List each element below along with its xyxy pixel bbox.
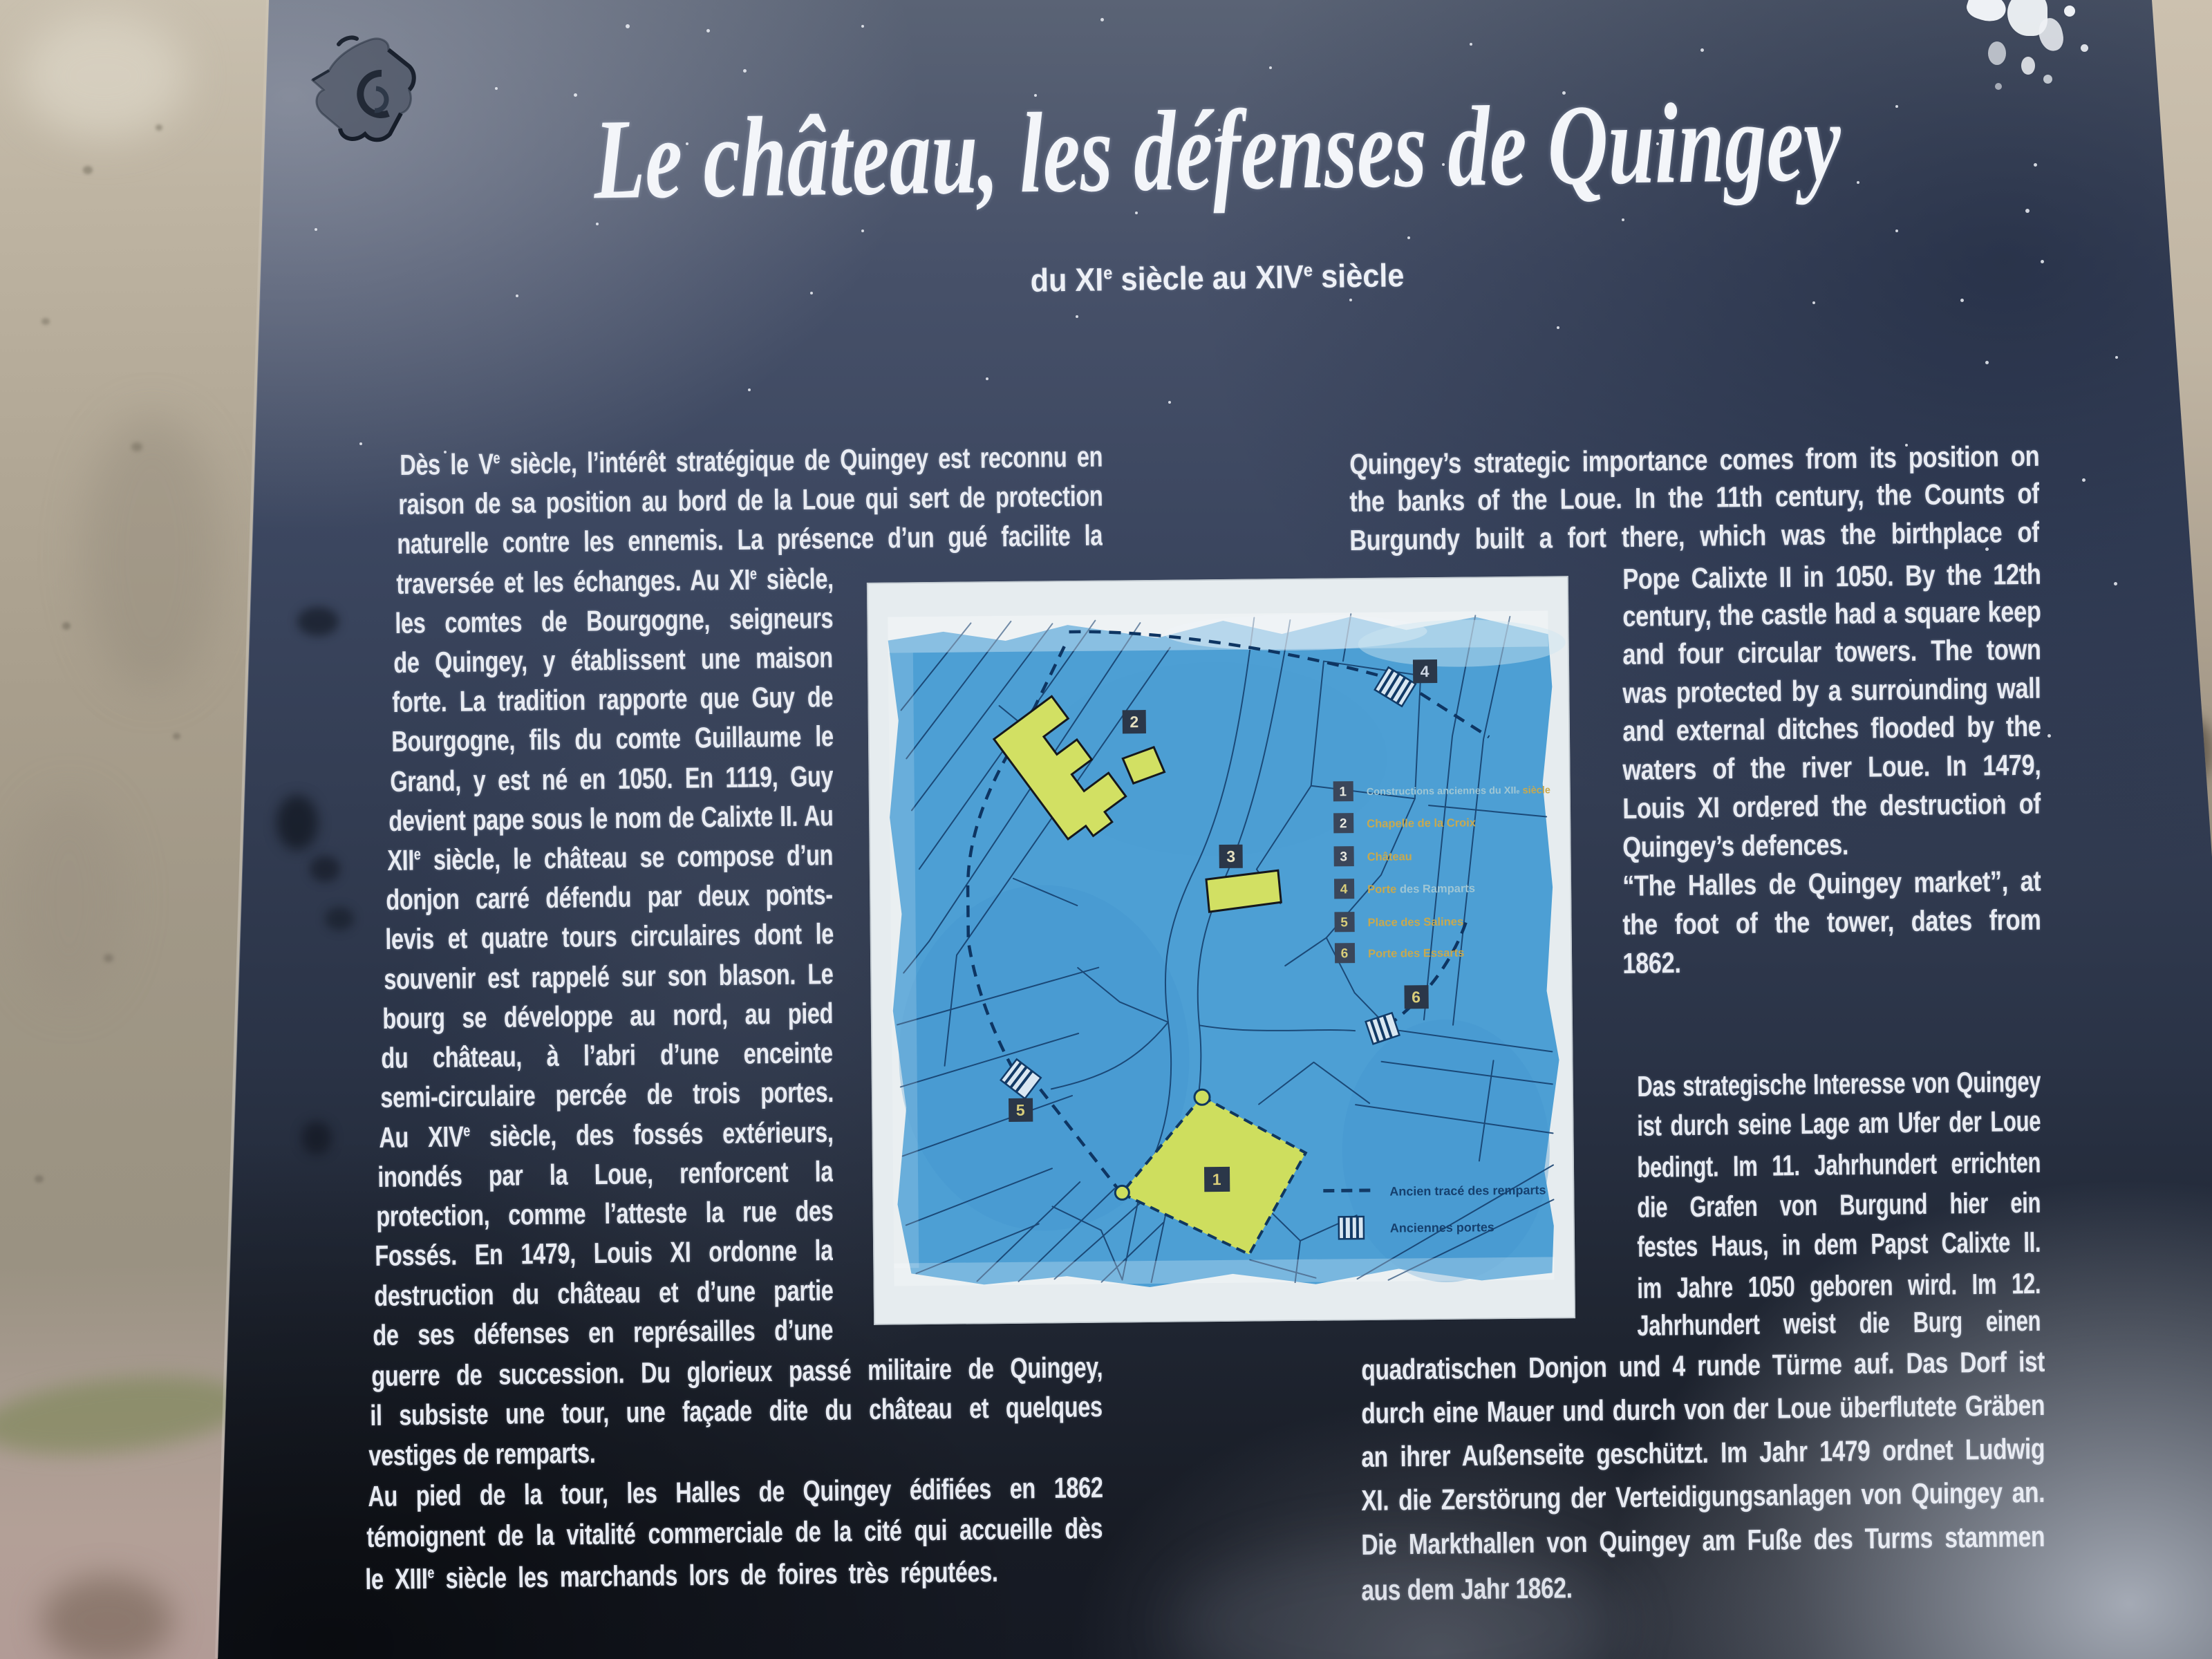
svg-text:1: 1 xyxy=(1339,785,1347,799)
svg-text:5: 5 xyxy=(1340,915,1348,930)
svg-text:2: 2 xyxy=(1340,816,1347,831)
svg-text:5: 5 xyxy=(1016,1101,1025,1119)
svg-text:Anciennes portes: Anciennes portes xyxy=(1390,1220,1494,1235)
svg-text:Château: Château xyxy=(1367,850,1412,863)
svg-text:Chapelle de la Croix: Chapelle de la Croix xyxy=(1367,816,1477,830)
svg-text:3: 3 xyxy=(1340,850,1347,864)
svg-text:6: 6 xyxy=(1412,988,1421,1006)
svg-text:4: 4 xyxy=(1421,662,1430,680)
svg-text:Ancien tracé des remparts: Ancien tracé des remparts xyxy=(1389,1183,1546,1199)
svg-text:1: 1 xyxy=(1212,1170,1221,1188)
svg-text:6: 6 xyxy=(1341,946,1349,961)
svg-text:Porte des Essarts: Porte des Essarts xyxy=(1368,947,1465,960)
svg-text:2: 2 xyxy=(1130,713,1138,731)
svg-text:Porte des Ramparts: Porte des Ramparts xyxy=(1367,882,1475,895)
svg-text:Place des Salines: Place des Salines xyxy=(1368,916,1464,929)
svg-text:Constructions anciennes du XII: Constructions anciennes du XIIe siècle xyxy=(1367,785,1550,798)
svg-text:3: 3 xyxy=(1226,847,1235,865)
svg-text:4: 4 xyxy=(1340,882,1348,897)
